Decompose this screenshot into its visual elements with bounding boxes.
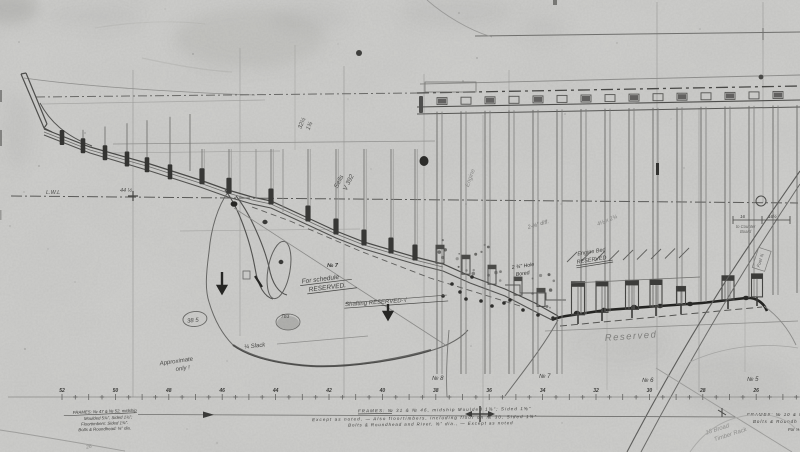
svg-text:№ 6: № 6 (642, 377, 654, 384)
svg-text:36: 36 (486, 388, 492, 394)
svg-text:44: 44 (272, 388, 279, 394)
svg-text:34: 34 (540, 388, 546, 394)
svg-text:26: 26 (752, 388, 759, 394)
svg-text:№ 7: № 7 (327, 263, 339, 269)
svg-text:46: 46 (218, 388, 225, 394)
svg-text:48: 48 (165, 388, 172, 394)
svg-text:38 5: 38 5 (187, 318, 200, 325)
svg-text:16½: 16½ (768, 213, 777, 219)
svg-text:Board: Board (740, 229, 752, 234)
svg-text:38: 38 (433, 388, 439, 394)
svg-text:16: 16 (740, 214, 746, 219)
svg-text:28: 28 (699, 388, 706, 394)
svg-text:783: 783 (281, 314, 290, 320)
svg-text:42: 42 (325, 388, 332, 394)
svg-text:26: 26 (85, 444, 93, 451)
svg-text:50: 50 (113, 388, 119, 394)
svg-text:32: 32 (593, 388, 599, 394)
svg-text:№ 5: № 5 (747, 376, 759, 383)
svg-text:40: 40 (379, 388, 386, 394)
svg-text:30: 30 (647, 388, 653, 394)
svg-text:№ 8: № 8 (432, 375, 444, 382)
svg-text:№ 7: № 7 (539, 373, 551, 380)
svg-text:52: 52 (59, 388, 65, 394)
svg-text:Bolts & Roundh: Bolts & Roundh (753, 419, 798, 424)
svg-text:L.W.L: L.W.L (46, 190, 60, 196)
svg-text:44 ½: 44 ½ (120, 187, 133, 194)
svg-text:For ⅜: For ⅜ (788, 427, 800, 432)
